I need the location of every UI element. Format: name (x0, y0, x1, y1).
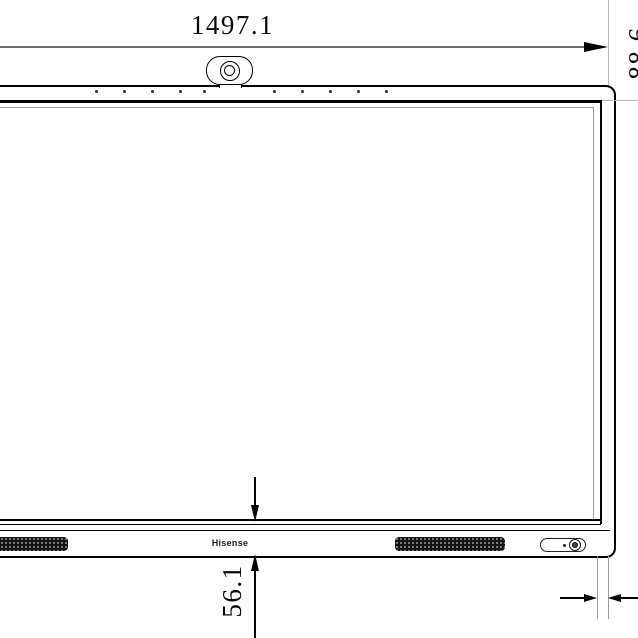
vent-hole (203, 90, 206, 93)
vent-hole (123, 90, 126, 93)
extension-line-bezel-top (602, 100, 638, 101)
extension-line-bottom-left (597, 556, 598, 619)
vent-hole (179, 90, 182, 93)
camera-lens-outer (220, 61, 240, 81)
vent-hole (151, 90, 154, 93)
arrowhead-up-icon (251, 554, 259, 571)
dimension-line-small-left (560, 597, 585, 599)
dimension-line-bar-upper (254, 477, 256, 507)
arrowhead-right-small-icon (584, 594, 597, 602)
dimension-label-depth: 88.6 (620, 18, 638, 88)
power-button-core (572, 542, 578, 548)
technical-drawing-canvas: 1497.1 88.6 Hisense (0, 0, 638, 638)
vent-hole (357, 90, 360, 93)
vent-hole (95, 90, 98, 93)
dimension-line-small-right (620, 597, 638, 599)
speaker-grille-right (395, 537, 505, 551)
bezel-bottom-line (0, 524, 601, 526)
vent-hole (329, 90, 332, 93)
dimension-label-bar-height: 56.1 (214, 558, 250, 624)
dimension-label-width: 1497.1 (160, 10, 305, 41)
extension-line-bottom-right (608, 556, 609, 619)
vent-hole (273, 90, 276, 93)
brand-logo: Hisense (210, 538, 250, 548)
ir-sensor-icon (563, 544, 566, 547)
screen-top-line (0, 107, 593, 108)
dimension-line-width (0, 46, 585, 48)
vent-hole (385, 90, 388, 93)
dimension-line-bar-lower (254, 571, 256, 638)
webcam-icon (206, 56, 253, 85)
extension-line-top-right (608, 0, 609, 88)
screen-right-line (593, 107, 594, 519)
power-button-icon (569, 539, 581, 551)
screen-bottom-line (0, 519, 601, 521)
control-pod (540, 538, 586, 552)
device-outline (0, 85, 616, 558)
vent-hole (301, 90, 304, 93)
bezel-right-line (600, 100, 603, 524)
soundbar-top-line (0, 530, 610, 532)
bezel-top-line (0, 100, 602, 103)
arrowhead-right-icon (584, 42, 608, 52)
arrowhead-down-icon (251, 505, 259, 522)
camera-lens-inner (224, 65, 235, 76)
speaker-grille-left (0, 537, 68, 551)
